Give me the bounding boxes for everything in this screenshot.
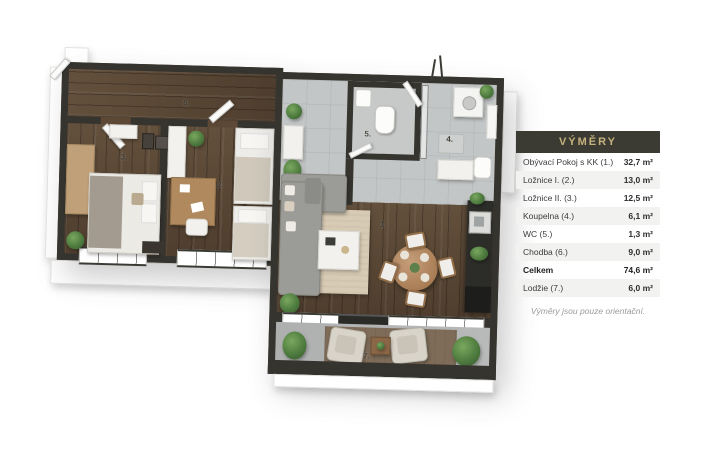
- bidet: [473, 156, 492, 178]
- legend-room-area: 1,3 m²: [628, 229, 653, 239]
- legend-row: WC (5.) 1,3 m²: [516, 225, 660, 243]
- washer-door: [462, 96, 476, 110]
- bed-blanket: [233, 223, 269, 258]
- balcony-armchair: [389, 327, 429, 365]
- legend-room-area: 6,0 m²: [628, 283, 653, 293]
- sink-basin: [474, 216, 484, 226]
- legend-room-area: 13,0 m²: [624, 175, 653, 185]
- legend-room-area: 32,7 m²: [624, 157, 653, 167]
- legend-room-name: Koupelna (4.): [523, 211, 574, 221]
- desk-chair: [186, 218, 208, 236]
- pillow: [141, 203, 158, 223]
- armchair-cushion: [334, 334, 357, 355]
- console-table: [283, 125, 304, 160]
- plate: [398, 272, 407, 281]
- towel-rail: [486, 105, 497, 139]
- shelf-unit: [109, 124, 137, 139]
- paper: [180, 184, 190, 192]
- legend-room-name: Ložnice II. (3.): [523, 193, 577, 203]
- kitchen-sink: [469, 211, 492, 234]
- legend-total-area: 74,6 m²: [624, 265, 653, 275]
- sofa-throw: [304, 178, 321, 204]
- area-legend: VÝMĚRY Obývací Pokoj s KK (1.) 32,7 m² L…: [516, 131, 660, 316]
- legend-row: Ložnice II. (3.) 12,5 m²: [516, 189, 660, 207]
- room-label-living: 1.: [380, 220, 387, 229]
- armchair-cushion: [396, 335, 418, 355]
- legend-row: Chodba (6.) 9,0 m²: [516, 243, 660, 261]
- plant: [376, 342, 384, 350]
- floorplan-render: 1. 2. 3. 4. 5. 6. 7.: [35, 38, 525, 401]
- pillow: [141, 181, 158, 201]
- coffee-table-bowl: [341, 246, 349, 254]
- plate: [400, 250, 409, 259]
- legend-row: Koupelna (4.) 6,1 m²: [516, 207, 660, 225]
- legend-footnote: Výměry jsou pouze orientační.: [516, 306, 660, 316]
- legend-row-total: Celkem 74,6 m²: [516, 261, 660, 279]
- legend-room-name: Obývací Pokoj s KK (1.): [523, 157, 613, 167]
- legend-room-name: WC (5.): [523, 229, 552, 239]
- bookshelf: [167, 126, 186, 178]
- tv-board: [142, 241, 164, 254]
- pillow: [238, 209, 267, 224]
- toilet: [374, 106, 395, 135]
- legend-title: VÝMĚRY: [516, 131, 660, 153]
- single-bed: [233, 128, 274, 205]
- plate: [420, 253, 429, 262]
- coffee-table: [318, 230, 360, 270]
- dining-chair: [405, 289, 427, 308]
- bed-blanket: [235, 157, 271, 202]
- plate: [420, 273, 429, 282]
- legend-room-name: Chodba (6.): [523, 247, 568, 257]
- hallway-floor: [68, 69, 276, 122]
- room-label-koupelna: 4.: [446, 135, 453, 144]
- bathroom-vanity: [437, 159, 474, 180]
- hall-wall-segment: [68, 116, 101, 124]
- legend-room-area: 6,1 m²: [628, 211, 653, 221]
- wc-sink: [355, 89, 371, 107]
- floorplan-page: 1. 2. 3. 4. 5. 6. 7. VÝMĚRY Obývací Poko…: [0, 0, 702, 468]
- room-label-wc: 5.: [364, 129, 371, 138]
- balcony-armchair: [326, 326, 367, 366]
- bed-blanket: [88, 176, 123, 249]
- legend-row: Lodžie (7.) 6,0 m²: [516, 279, 660, 297]
- sofa-pillow: [284, 201, 294, 211]
- room-label-loznice-ii: 3.: [121, 153, 128, 162]
- room-label-chodba: 6.: [183, 98, 190, 107]
- legend-row: Obývací Pokoj s KK (1.) 32,7 m²: [516, 153, 660, 171]
- legend-row: Ložnice I. (2.) 13,0 m²: [516, 171, 660, 189]
- legend-room-area: 12,5 m²: [624, 193, 653, 203]
- sofa-pillow: [285, 185, 295, 195]
- legend-total-name: Celkem: [523, 265, 553, 275]
- single-bed: [232, 206, 272, 261]
- accent-pillow: [131, 193, 143, 205]
- room-label-lodzie: 7.: [363, 351, 370, 360]
- legend-room-name: Lodžie (7.): [523, 283, 563, 293]
- picture-frame: [142, 133, 154, 149]
- paper: [190, 202, 204, 213]
- table-centerpiece: [410, 263, 420, 273]
- balcony-table: [370, 337, 390, 356]
- stove: [464, 286, 491, 313]
- legend-rows: Obývací Pokoj s KK (1.) 32,7 m² Ložnice …: [516, 153, 660, 297]
- sofa-pillow: [286, 221, 296, 231]
- coffee-table-books: [325, 237, 335, 245]
- room-label-loznice-i: 2.: [217, 180, 224, 189]
- pillow: [240, 133, 269, 150]
- legend-room-name: Ložnice I. (2.): [523, 175, 575, 185]
- legend-room-area: 9,0 m²: [628, 247, 653, 257]
